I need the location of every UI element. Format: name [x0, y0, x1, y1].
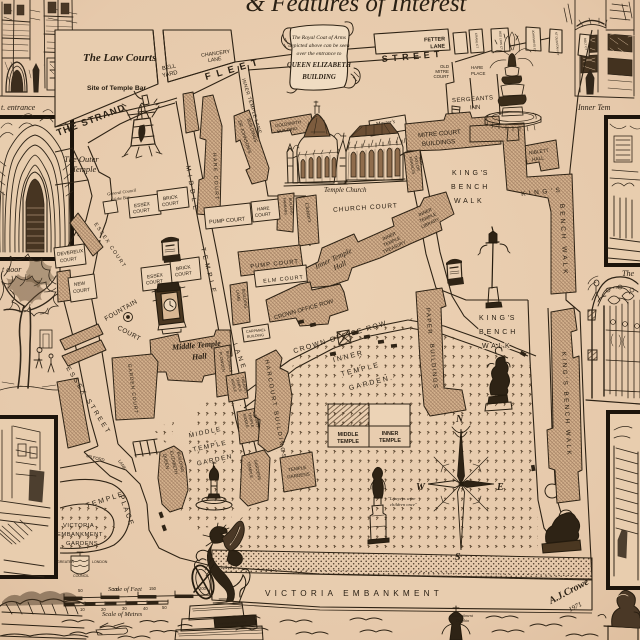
svg-text:VICTORIA EMBANKMENT: VICTORIA EMBANKMENT [265, 589, 443, 598]
svg-text:t. entrance: t. entrance [1, 103, 36, 112]
svg-text:W A L K: W A L K [454, 198, 482, 205]
svg-text:150: 150 [149, 586, 157, 591]
svg-text:Temple Church: Temple Church [324, 186, 367, 194]
svg-text:BUILDING: BUILDING [301, 74, 336, 81]
svg-text:W: W [416, 482, 426, 493]
svg-text:N: N [455, 414, 464, 425]
svg-text:10: 10 [80, 607, 85, 612]
svg-text:K I N G 'S: K I N G 'S [479, 315, 515, 322]
svg-text:COURT: COURT [433, 74, 449, 79]
svg-text:over the entrance to: over the entrance to [297, 51, 342, 57]
svg-text:200: 200 [199, 586, 207, 591]
svg-text:INN: INN [470, 105, 481, 112]
svg-text:HARE: HARE [471, 65, 483, 70]
svg-text:LANE: LANE [430, 44, 445, 51]
svg-text:INNER: INNER [382, 431, 399, 437]
svg-text:GARDENS: GARDENS [66, 541, 98, 547]
svg-text:children once": children once" [390, 502, 417, 507]
svg-text:B E N C H: B E N C H [479, 329, 516, 336]
svg-text:B E N C H: B E N C H [451, 184, 488, 191]
svg-text:40: 40 [143, 606, 148, 611]
svg-text:LONDON: LONDON [92, 560, 108, 564]
svg-text:Inner Tem: Inner Tem [577, 103, 611, 112]
svg-text:GREATER: GREATER [57, 560, 75, 564]
svg-text:t door: t door [2, 265, 22, 274]
svg-text:Scale of Metres: Scale of Metres [102, 611, 143, 618]
svg-text:QUEEN ELIZABETH: QUEEN ELIZABETH [287, 62, 352, 69]
svg-text:"Lawyers were: "Lawyers were [388, 496, 415, 501]
svg-text:Hall: Hall [191, 351, 208, 361]
svg-text:S: S [455, 552, 461, 563]
svg-text:20: 20 [101, 607, 106, 612]
svg-text:K I N G 'S: K I N G 'S [452, 170, 488, 177]
svg-text:EMBANKMENT: EMBANKMENT [57, 532, 103, 538]
svg-text:COUNCIL: COUNCIL [73, 574, 89, 578]
svg-text:The Royal Coat of Arms: The Royal Coat of Arms [292, 34, 346, 41]
svg-text:The Law Courts: The Law Courts [83, 52, 156, 64]
svg-text:VICTORIA: VICTORIA [63, 523, 94, 529]
svg-text:50: 50 [162, 605, 167, 610]
svg-text:MIDDLE: MIDDLE [338, 432, 359, 438]
svg-text:& Features of Interest: & Features of Interest [245, 0, 467, 17]
svg-text:TEMPLE: TEMPLE [379, 438, 401, 444]
svg-text:50: 50 [78, 588, 83, 593]
svg-text:FETTER: FETTER [424, 36, 445, 43]
svg-text:100: 100 [112, 587, 120, 592]
svg-text:The Outer: The Outer [64, 154, 99, 164]
svg-text:Temple: Temple [72, 164, 96, 174]
svg-text:TEMPLE: TEMPLE [337, 439, 359, 445]
svg-text:PLACE: PLACE [471, 71, 485, 76]
svg-text:Site of Temple Bar: Site of Temple Bar [87, 85, 147, 92]
svg-text:depicted above can be seen: depicted above can be seen [288, 43, 349, 49]
svg-text:30: 30 [122, 606, 127, 611]
svg-text:Dolphin: Dolphin [455, 618, 469, 623]
svg-text:E: E [496, 482, 504, 493]
